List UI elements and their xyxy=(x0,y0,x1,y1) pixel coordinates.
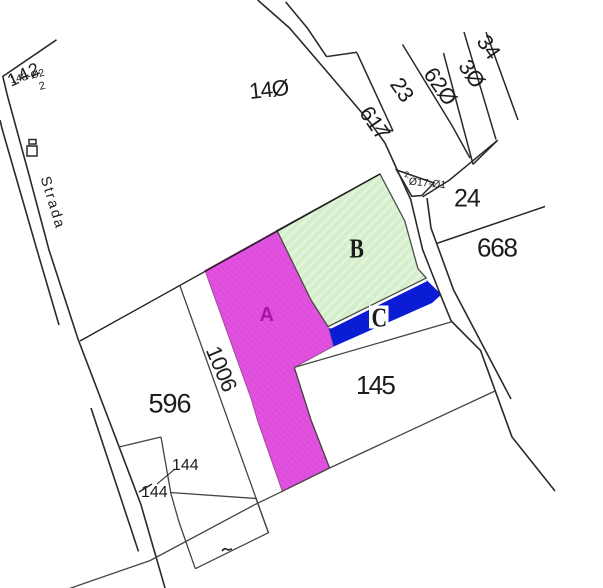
svg-text:14Ø: 14Ø xyxy=(248,75,290,104)
svg-text:C: C xyxy=(372,303,388,333)
svg-text:A: A xyxy=(260,304,274,326)
svg-text:668: 668 xyxy=(477,233,518,263)
svg-text:144: 144 xyxy=(141,484,168,501)
svg-text:596: 596 xyxy=(149,389,191,419)
svg-text:145: 145 xyxy=(356,370,395,400)
svg-text:B: B xyxy=(350,234,364,264)
svg-text:144: 144 xyxy=(172,457,199,474)
svg-text:24: 24 xyxy=(454,185,481,213)
